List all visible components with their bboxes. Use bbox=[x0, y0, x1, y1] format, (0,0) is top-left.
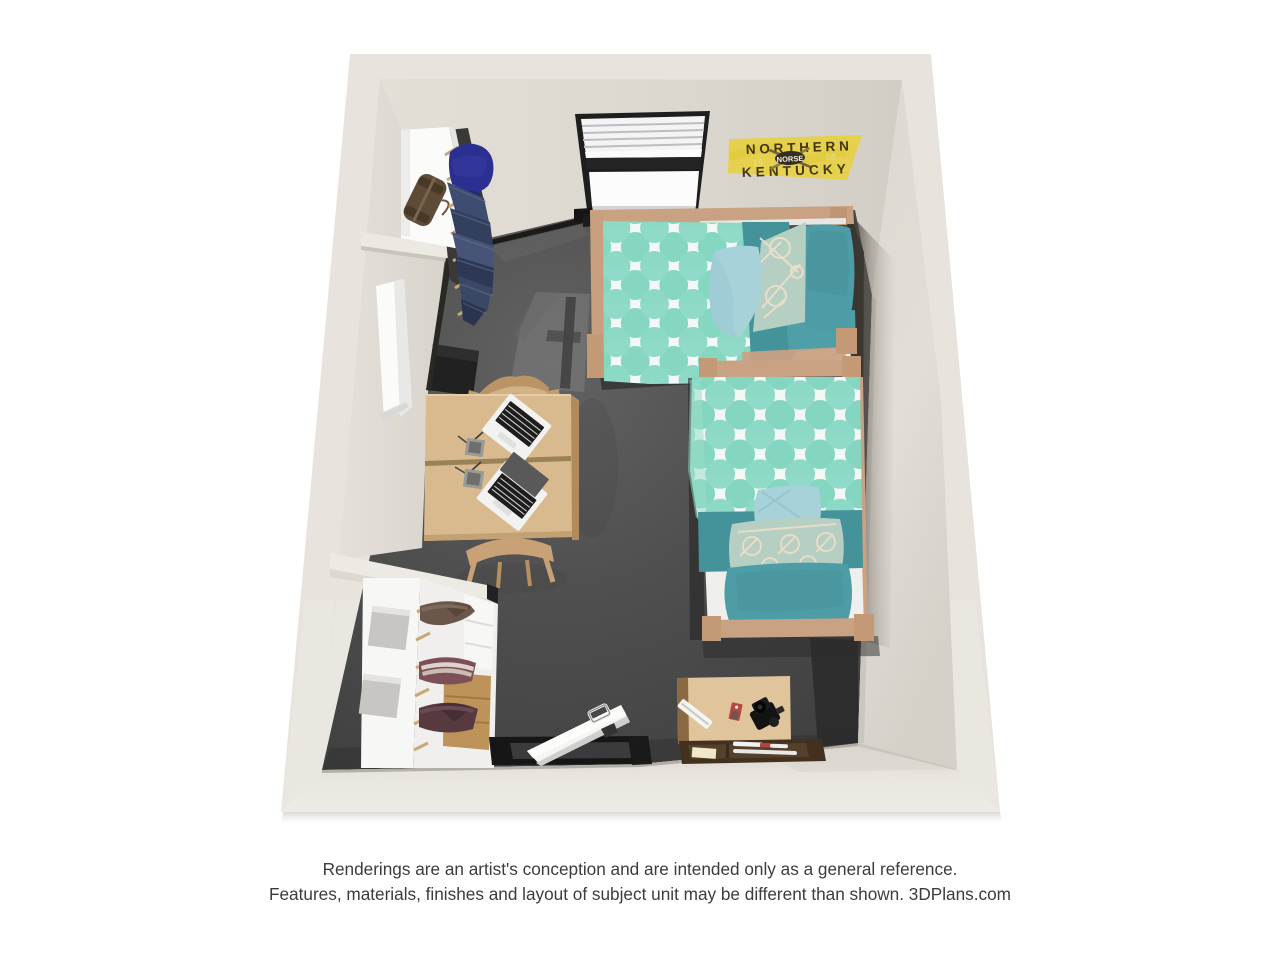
svg-text:NORSE: NORSE bbox=[776, 154, 803, 164]
svg-text:19: 19 bbox=[753, 157, 764, 168]
svg-text:08: 08 bbox=[826, 152, 837, 163]
